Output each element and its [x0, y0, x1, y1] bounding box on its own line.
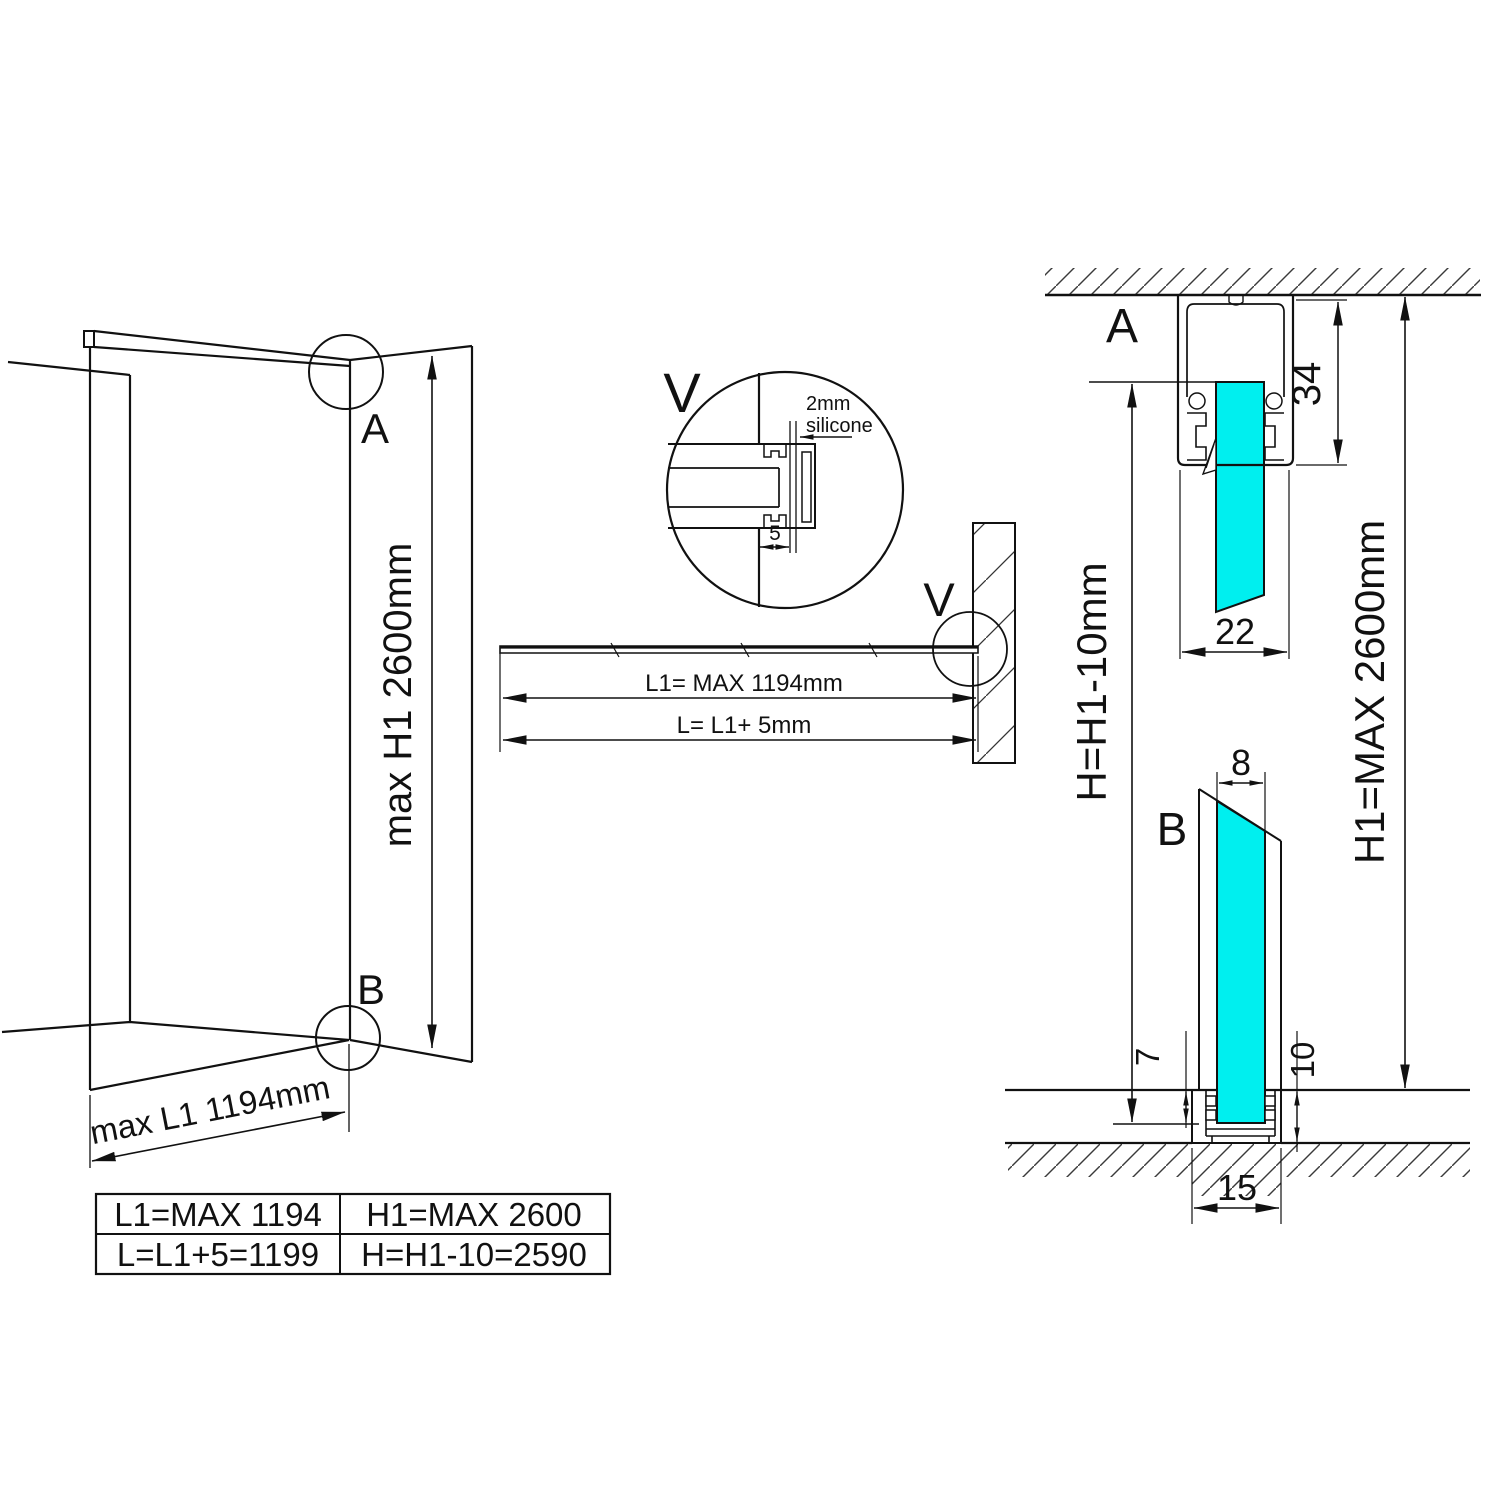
detail-a-top-profile: 34 22 A — [1106, 295, 1347, 659]
ceiling-hatch — [1045, 268, 1480, 295]
glass-panel-top-view — [668, 468, 779, 507]
glass-height-dimension: H=H1-10mm — [1068, 562, 1115, 801]
label-a: A — [1106, 300, 1138, 353]
profile-notches — [764, 444, 786, 528]
wall-and-floor-edges — [2, 332, 349, 1090]
table-cell-h: H=H1-10=2590 — [361, 1236, 587, 1273]
gap-dimension: 5 — [769, 522, 781, 545]
table-cell-h1: H1=MAX 2600 — [366, 1196, 582, 1233]
l-dimension: L= L1+ 5mm — [677, 712, 812, 739]
floor-gap-dimension: 7 — [1129, 1048, 1166, 1066]
profile-screw-boss-right — [1266, 393, 1282, 409]
profile-outline — [668, 444, 815, 528]
table-cell-l1: L1=MAX 1194 — [114, 1196, 322, 1233]
bottom-width-dimension: 15 — [1217, 1167, 1257, 1208]
profile-clamp-right — [1265, 413, 1284, 460]
silicone-note-line1: 2mm — [806, 393, 850, 415]
profile-width-dimension: 22 — [1215, 611, 1255, 652]
total-height-dimension: H1=MAX 2600mm — [1346, 520, 1393, 864]
label-v: V — [663, 361, 701, 424]
l1-dimension: L1= MAX 1194mm — [645, 670, 843, 697]
detail-circle-v — [667, 372, 903, 608]
profile-screw-boss-left — [1189, 393, 1205, 409]
table-cell-l: L=L1+5=1199 — [117, 1236, 319, 1273]
glass-thickness-dimension: 8 — [1231, 742, 1251, 783]
profile-clamp-left — [1187, 413, 1206, 460]
wall-strip — [973, 523, 1015, 763]
silicone-gap-lines — [790, 421, 796, 553]
label-a: A — [361, 405, 389, 452]
technical-drawing-page: A B max H1 2600mm max L1 1194mm V 2mm si… — [0, 0, 1500, 1500]
glass-panel-section-b — [1217, 801, 1265, 1123]
support-bar-endcap — [84, 331, 94, 347]
label-b: B — [1157, 803, 1188, 855]
spec-table: L1=MAX 1194 H1=MAX 2600 L=L1+5=1199 H=H1… — [96, 1194, 610, 1274]
glass-panel-section-a — [1216, 382, 1264, 612]
section-view: 34 22 A H=H1-10mm H1=MAX 2600mm — [1005, 268, 1481, 1224]
detail-b-bottom-profile: 8 7 10 15 B — [1008, 742, 1470, 1224]
glass-wedge-gasket — [1203, 438, 1216, 474]
plan-view-bar-length: V L1= MAX 1194mm L= L1+ 5mm — [500, 523, 1015, 763]
wall-plate — [802, 452, 811, 522]
overview-perspective-view: A B max H1 2600mm max L1 1194mm — [2, 331, 472, 1168]
max-height-dimension: max H1 2600mm — [376, 543, 420, 848]
label-v-reference: V — [923, 573, 955, 626]
floor-depth-dimension: 10 — [1284, 1042, 1321, 1079]
profile-height-dimension: 34 — [1285, 362, 1329, 407]
detail-circle-a — [309, 335, 383, 409]
silicone-note-line2: silicone — [806, 415, 873, 437]
shower-screen-installation-diagram: A B max H1 2600mm max L1 1194mm V 2mm si… — [0, 0, 1500, 1500]
label-b: B — [357, 966, 385, 1013]
detail-v-magnified: V 2mm silicone 5 — [663, 361, 903, 608]
